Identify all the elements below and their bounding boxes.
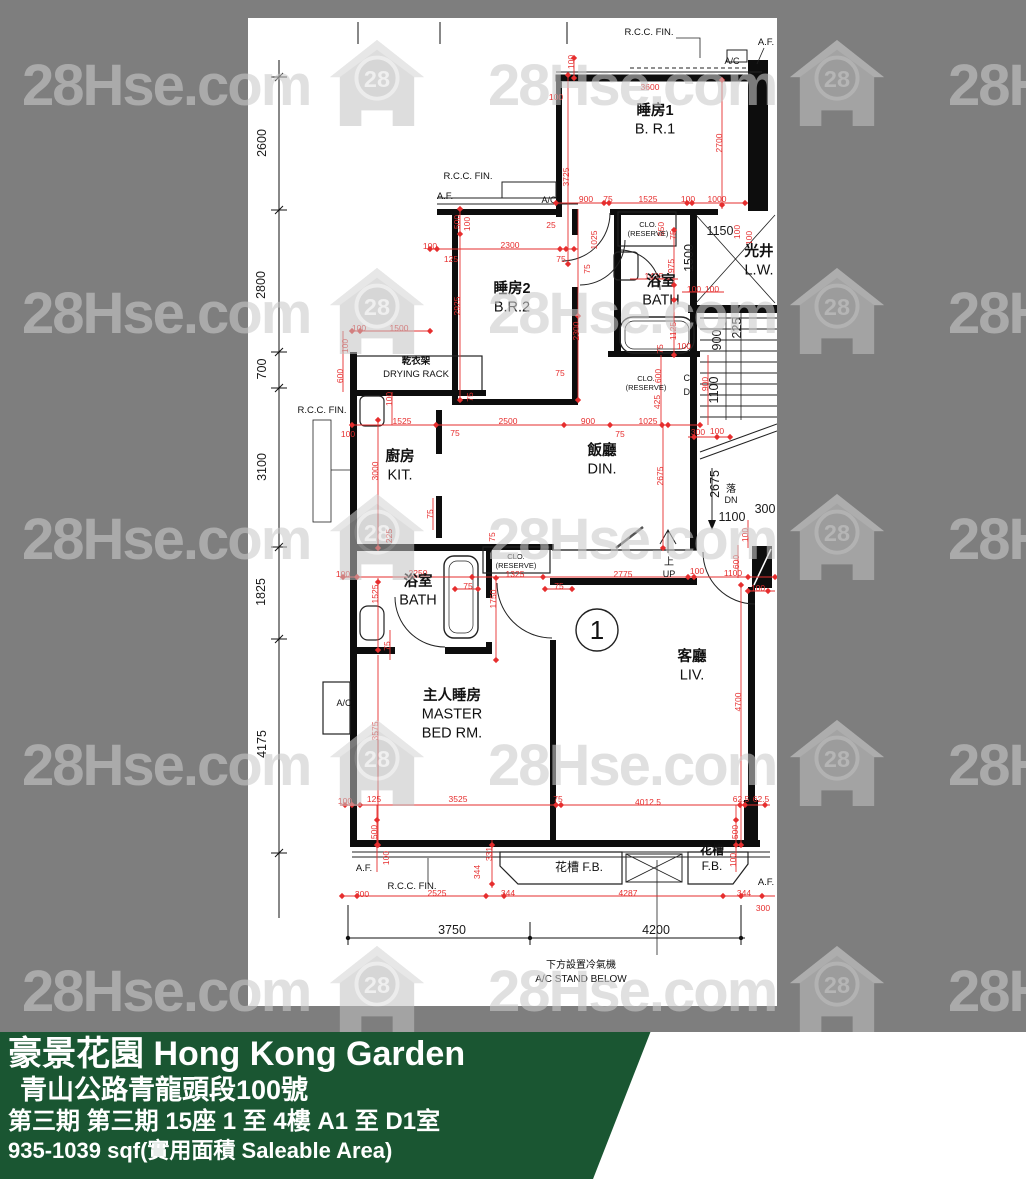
room-label: L.W.	[744, 263, 773, 279]
red-dim: 100	[549, 92, 563, 102]
red-dim: 4700	[733, 692, 743, 711]
dim-tick	[493, 575, 499, 581]
red-dim: 75	[450, 428, 460, 438]
svg-text:28: 28	[824, 66, 850, 92]
red-dim: 1525	[639, 194, 658, 204]
red-dim: 975	[666, 259, 676, 273]
watermark-house-icon: 28	[788, 266, 886, 361]
red-dim: 100	[732, 225, 742, 239]
estate-phase: 第三期 第三期 15座 1 至 4樓 A1 至 D1室	[8, 1108, 1026, 1135]
dim-tick	[727, 434, 733, 440]
watermark-house-icon: 28	[788, 38, 886, 133]
plan-label: A/C	[724, 56, 740, 66]
red-dim: 100	[705, 284, 719, 294]
watermark-text: 28Hse.com	[948, 732, 1026, 799]
red-dim: 75	[554, 581, 564, 591]
dim-tick	[745, 574, 751, 580]
dim-tick	[565, 261, 571, 267]
dim-tick	[720, 893, 726, 899]
room-label: LIV.	[680, 668, 704, 684]
dim-tick	[561, 422, 567, 428]
red-dim: 2500	[499, 416, 518, 426]
watermark-house-icon: 28	[788, 492, 886, 587]
black-dim: 225	[730, 318, 744, 339]
plan-label: D.	[684, 387, 693, 397]
red-dim: 125	[444, 254, 458, 264]
dim-tick	[765, 588, 771, 594]
room-label: 花槽	[700, 842, 724, 857]
red-dim: 75	[615, 429, 625, 439]
red-dim: 25	[546, 220, 556, 230]
plan-label: A.F.	[758, 877, 774, 888]
black-dim: 900	[710, 330, 724, 351]
red-dim: 1025	[589, 230, 599, 249]
red-dim: 344	[472, 865, 482, 879]
red-dim: 75	[655, 344, 665, 354]
room-label: 乾衣架	[402, 355, 431, 367]
black-dim: 1500	[682, 244, 696, 272]
red-dim: 4287	[619, 888, 638, 898]
estate-address: 青山公路青龍頭段100號	[20, 1075, 1026, 1105]
dim-tick	[469, 574, 475, 580]
plan-label: R.C.C. FIN.	[443, 171, 492, 182]
watermark-house-icon: 28	[788, 718, 886, 813]
red-dim: 75	[425, 509, 435, 519]
red-dim: 100	[340, 339, 350, 353]
black-dim: 1150	[707, 224, 734, 238]
room-label: B. R.1	[635, 122, 675, 138]
red-dim: 100	[384, 392, 394, 406]
screenshot-stage: 3600100900751525100100025100230012575142…	[0, 0, 1026, 1179]
red-dim: 2700	[714, 133, 724, 152]
plan-label: DN	[725, 495, 738, 505]
room-label: B.R.2	[494, 300, 530, 316]
red-dim: 100	[744, 231, 754, 245]
plan-label: A/C STAND BELOW	[535, 974, 627, 985]
red-dim: 75	[582, 264, 592, 274]
dim-tick	[772, 574, 777, 580]
plan-label: R.C.C. FIN.	[387, 881, 436, 892]
dim-tick	[571, 246, 577, 252]
red-dim: 100	[740, 528, 750, 542]
dim-tick	[738, 582, 744, 588]
red-dim: 1500	[390, 323, 409, 333]
room-label: 光井	[744, 242, 774, 260]
red-dim: 75	[555, 368, 565, 378]
red-dim: 100	[687, 284, 701, 294]
red-dim: 1525	[370, 584, 380, 603]
red-dim: 3725	[561, 167, 571, 186]
estate-title: 豪景花園 Hong Kong Garden	[8, 1035, 1026, 1073]
dim-tick	[542, 586, 548, 592]
red-dim: 2300	[571, 321, 581, 340]
black-dim: 1100	[719, 510, 746, 524]
red-dim: 75	[487, 532, 497, 542]
red-dim: 225	[384, 529, 394, 543]
plan-label: C.	[684, 373, 693, 383]
red-dim: 1525	[393, 416, 412, 426]
black-dim: 2675	[708, 470, 722, 498]
room-label: 睡房1	[636, 101, 673, 119]
room-label: MASTER	[422, 707, 482, 723]
red-dim: 1025	[639, 416, 658, 426]
red-dim: 1325	[506, 569, 525, 579]
room-label: 浴室	[647, 272, 676, 290]
dim-tick	[489, 881, 495, 887]
watermark-text: 28Hse.com	[948, 506, 1026, 573]
svg-text:28: 28	[824, 972, 850, 998]
black-dim: 3750	[438, 923, 466, 937]
red-dim: 425	[652, 395, 662, 409]
dim-tick	[733, 817, 739, 823]
red-dim: 62.5	[753, 794, 770, 804]
room-label: KIT.	[388, 468, 413, 484]
plan-label: CLO.	[507, 552, 525, 561]
red-dim: 2675	[655, 466, 665, 485]
red-dim: 2925	[452, 296, 462, 315]
plan-label: A.F.	[356, 863, 372, 874]
room-label: 睡房2	[493, 279, 530, 297]
room-label: 客廳	[677, 647, 707, 665]
room-label: BATH	[399, 593, 437, 609]
room-label: 飯廳	[587, 441, 617, 459]
dim-tick	[375, 417, 381, 423]
red-dim: 3525	[449, 794, 468, 804]
red-dim: 100	[462, 217, 472, 231]
red-dim: 900	[581, 416, 595, 426]
room-label: 主人睡房	[423, 686, 481, 704]
black-dim: 4175	[255, 730, 269, 758]
red-dim: 75	[463, 581, 473, 591]
plan-label: (RESERVE)	[496, 561, 537, 570]
red-dim: 500	[730, 825, 740, 839]
dim-tick	[339, 893, 345, 899]
red-dim: 1125	[668, 322, 678, 341]
red-dim: 900	[579, 194, 593, 204]
red-dim: 75	[382, 641, 392, 651]
room-label: DRYING RACK	[383, 369, 449, 380]
room-label: BED RM.	[422, 725, 482, 741]
black-dim: 2800	[254, 271, 268, 299]
plan-label: (RESERVE)	[628, 229, 669, 238]
dim-tick	[427, 328, 433, 334]
unit-number: 1	[590, 615, 604, 645]
watermark-text: 28Hse.com	[948, 52, 1026, 119]
dim-tick	[475, 586, 481, 592]
room-label: DIN.	[588, 462, 617, 478]
plan-label: CLO.	[639, 220, 657, 229]
dim-tick	[357, 802, 363, 808]
red-dim: 2775	[614, 569, 633, 579]
dim-tick	[659, 422, 665, 428]
plan-label: 花槽 F.B.	[555, 859, 603, 874]
black-dim: 2600	[255, 129, 269, 157]
room-label: 廚房	[386, 447, 415, 465]
black-dim: 1100	[707, 377, 721, 404]
svg-text:28: 28	[824, 294, 850, 320]
red-dim: 600	[731, 555, 741, 569]
red-dim: 3600	[641, 82, 660, 92]
black-dim: 300	[755, 502, 776, 516]
red-dim: 100	[690, 566, 704, 576]
watermark-text: 28Hse.com	[948, 958, 1026, 1025]
red-dim: 62.5	[733, 794, 750, 804]
red-dim: 500	[369, 825, 379, 839]
red-dim: 75	[465, 392, 475, 402]
dim-tick	[374, 817, 380, 823]
black-dim: 4200	[642, 923, 670, 937]
svg-text:28: 28	[824, 520, 850, 546]
dim-tick	[375, 579, 381, 585]
dim-tick	[493, 657, 499, 663]
banner-green-area: 豪景花園 Hong Kong Garden 青山公路青龍頭段100號 第三期 第…	[0, 1032, 1026, 1179]
dim-tick	[540, 574, 546, 580]
red-dim: 100	[341, 429, 355, 439]
plan-label: A.F.	[437, 191, 453, 202]
room-label: F.B.	[702, 859, 723, 873]
red-dim: 331	[484, 847, 494, 861]
red-dim: 600	[335, 369, 345, 383]
estate-area: 935-1039 sqf(實用面積 Saleable Area)	[8, 1138, 1026, 1163]
red-dim: 2300	[501, 240, 520, 250]
red-dim: 1000	[708, 194, 727, 204]
svg-text:28: 28	[824, 746, 850, 772]
dim-tick	[557, 246, 563, 252]
red-dim: 4012.5	[635, 797, 661, 807]
room-label: 浴室	[404, 572, 433, 590]
black-dim: 3100	[255, 453, 269, 481]
red-dim: 1750	[488, 589, 498, 608]
plan-label: (RESERVE)	[626, 383, 667, 392]
plan-label: 上	[664, 556, 674, 568]
red-dim: 75	[556, 254, 566, 264]
plan-label: A/C	[336, 698, 352, 708]
dim-tick	[483, 893, 489, 899]
dim-tick	[569, 586, 575, 592]
red-dim: 100	[677, 341, 691, 351]
dim-tick	[607, 422, 613, 428]
floor-plan: 3600100900751525100100025100230012575142…	[248, 18, 777, 1006]
red-dim: 125	[367, 794, 381, 804]
plan-label: R.C.C. FIN.	[297, 405, 346, 416]
plan-label: UP	[663, 569, 676, 579]
red-dim: 300	[756, 903, 770, 913]
plan-label: R.C.C. FIN.	[624, 27, 673, 38]
plan-label: CLO.	[637, 374, 655, 383]
plan-label: A.F.	[758, 37, 774, 48]
watermark-text: 28Hse.com	[948, 280, 1026, 347]
red-dim: 100	[751, 583, 765, 593]
black-dim-lines	[271, 22, 745, 945]
red-dim: 100	[381, 851, 391, 865]
dim-tick	[452, 586, 458, 592]
black-dim: 700	[255, 359, 269, 380]
plan-label: 落	[726, 483, 736, 495]
red-dim: 500	[452, 215, 462, 229]
watermark-house-icon: 28	[788, 944, 886, 1039]
red-dim: 100	[728, 853, 738, 867]
red-dim: 3575	[370, 721, 380, 740]
dim-tick	[759, 893, 765, 899]
plan-label: 下方設置冷氣機	[546, 958, 616, 971]
dim-tick	[665, 422, 671, 428]
info-banner: 豪景花園 Hong Kong Garden 青山公路青龍頭段100號 第三期 第…	[0, 1032, 1026, 1179]
dim-tick	[742, 200, 748, 206]
red-dim: 3000	[370, 461, 380, 480]
black-dim: 1825	[254, 578, 268, 606]
